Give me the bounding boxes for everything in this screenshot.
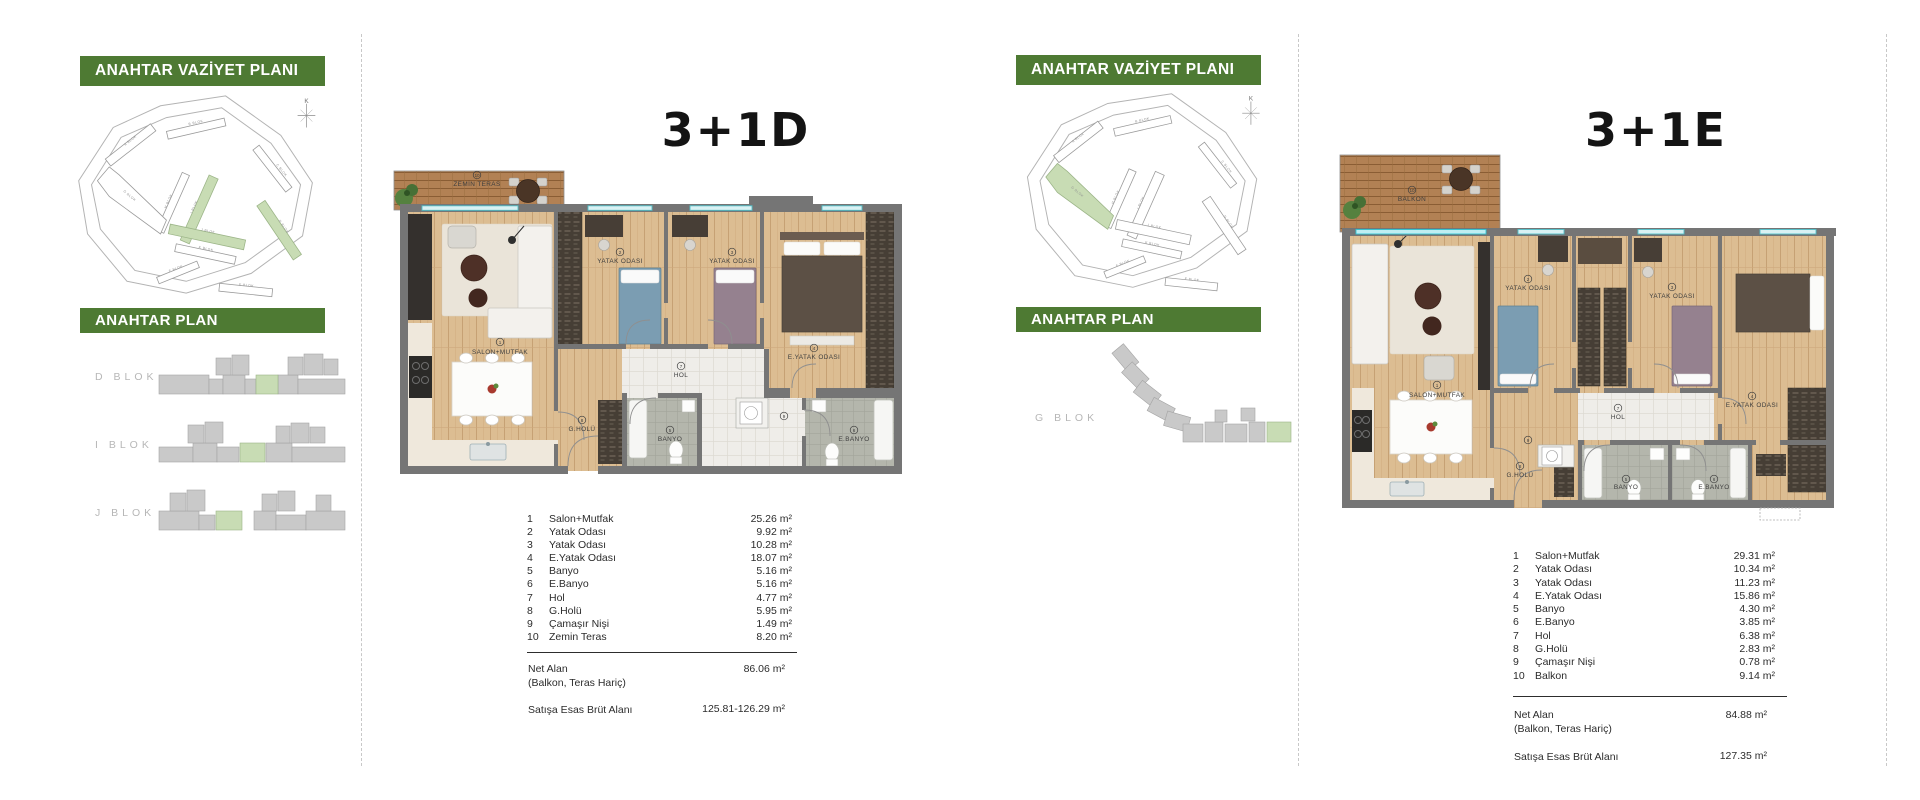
elevation-i-blok — [158, 416, 346, 468]
vaziyet-plan-header-left: ANAHTAR VAZİYET PLANI — [80, 56, 325, 86]
compass-icon: K — [1242, 96, 1259, 125]
room-table-d: 1Salon+Mutfak25.26 m² 2Yatak Odası9.92 m… — [527, 513, 792, 644]
divider-left — [361, 34, 362, 766]
svg-text:5: 5 — [669, 428, 672, 433]
table-row: 5Banyo4.30 m² — [1513, 603, 1775, 616]
anahtar-plan-header-left: ANAHTAR PLAN — [80, 308, 325, 333]
svg-text:BANYO: BANYO — [1614, 484, 1638, 491]
table-row: 9Çamaşır Nişi1.49 m² — [527, 618, 792, 631]
table-row: 9Çamaşır Nişi0.78 m² — [1513, 656, 1775, 669]
svg-text:8: 8 — [1519, 464, 1522, 469]
room-table-e: 1Salon+Mutfak29.31 m² 2Yatak Odası10.34 … — [1513, 550, 1775, 683]
block-label-g: G BLOK — [1035, 412, 1098, 424]
divider-middle — [1298, 34, 1299, 766]
svg-text:6: 6 — [853, 428, 856, 433]
svg-text:E.YATAK ODASI: E.YATAK ODASI — [1726, 402, 1778, 409]
table-row: 1Salon+Mutfak25.26 m² — [527, 513, 792, 526]
svg-text:HOL: HOL — [1611, 414, 1625, 421]
table-row: 4E.Yatak Odası15.86 m² — [1513, 590, 1775, 603]
svg-text:ZEMİN TERAS: ZEMİN TERAS — [453, 179, 500, 188]
balcony — [1340, 155, 1500, 232]
svg-text:8: 8 — [581, 418, 584, 423]
net-area-value-d: 86.06 m² — [527, 663, 785, 675]
svg-text:E.BANYO: E.BANYO — [838, 436, 869, 443]
svg-text:SALON+MUTFAK: SALON+MUTFAK — [1409, 392, 1465, 399]
table-row: 3Yatak Odası11.23 m² — [1513, 577, 1775, 590]
svg-text:10: 10 — [1409, 188, 1415, 193]
svg-text:4: 4 — [1751, 394, 1754, 399]
svg-text:HOL: HOL — [674, 372, 688, 379]
summary-rule-d — [527, 652, 797, 653]
svg-text:2: 2 — [619, 250, 622, 255]
block-label-i: I BLOK — [95, 439, 153, 451]
svg-text:6: 6 — [1713, 477, 1716, 482]
elevation-j-blok — [158, 484, 346, 536]
elevation-g-blok — [1095, 342, 1295, 460]
svg-text:YATAK ODASI: YATAK ODASI — [1505, 285, 1551, 292]
table-row: 8G.Holü2.83 m² — [1513, 643, 1775, 656]
svg-text:3: 3 — [1671, 285, 1674, 290]
svg-text:BALKON: BALKON — [1398, 196, 1426, 203]
table-row: 2Yatak Odası10.34 m² — [1513, 563, 1775, 576]
svg-text:SALON+MUTFAK: SALON+MUTFAK — [472, 349, 528, 356]
svg-text:1: 1 — [499, 340, 502, 345]
elevation-d-blok — [158, 348, 346, 400]
svg-text:E.YATAK ODASI: E.YATAK ODASI — [788, 354, 840, 361]
table-row: 2Yatak Odası9.92 m² — [527, 526, 792, 539]
net-area-value-e: 84.88 m² — [1513, 709, 1767, 721]
site-plan-right: A BLOK B BLOK C BLOK H BLOK I BLOK G BLO… — [1012, 88, 1277, 296]
compass-icon: K — [298, 98, 316, 128]
svg-text:9: 9 — [783, 414, 786, 419]
svg-text:K: K — [304, 98, 309, 105]
table-row: 6E.Banyo5.16 m² — [527, 578, 792, 591]
svg-text:BANYO: BANYO — [658, 436, 682, 443]
table-row: 10Zemin Teras8.20 m² — [527, 631, 792, 644]
svg-text:7: 7 — [680, 364, 683, 369]
svg-text:E.BANYO: E.BANYO — [1698, 484, 1729, 491]
gross-area-value-d: 125.81-126.29 m² — [527, 703, 785, 715]
svg-text:2: 2 — [1527, 277, 1530, 282]
svg-text:7: 7 — [1617, 406, 1620, 411]
table-row: 3Yatak Odası10.28 m² — [527, 539, 792, 552]
divider-right — [1886, 34, 1887, 766]
svg-text:YATAK ODASI: YATAK ODASI — [597, 258, 643, 265]
table-row: 4E.Yatak Odası18.07 m² — [527, 552, 792, 565]
svg-text:5: 5 — [1625, 477, 1628, 482]
gross-area-value-e: 127.35 m² — [1513, 750, 1767, 762]
table-row: 1Salon+Mutfak29.31 m² — [1513, 550, 1775, 563]
vaziyet-plan-header-right: ANAHTAR VAZİYET PLANI — [1016, 55, 1261, 85]
svg-text:G.HOLÜ: G.HOLÜ — [1507, 471, 1534, 479]
lower-step — [1760, 508, 1800, 520]
anahtar-plan-header-right: ANAHTAR PLAN — [1016, 307, 1261, 332]
table-row: 10Balkon9.14 m² — [1513, 670, 1775, 683]
table-row: 6E.Banyo3.85 m² — [1513, 616, 1775, 629]
site-plan-left: A BLOK B BLOK C BLOK H BLOK I BLOK G BLO… — [68, 90, 328, 302]
svg-text:G.HOLÜ: G.HOLÜ — [569, 425, 596, 433]
svg-text:3: 3 — [731, 250, 734, 255]
svg-text:4: 4 — [813, 346, 816, 351]
table-row: 7Hol4.77 m² — [527, 592, 792, 605]
floor-plan-d: 1 SALON+MUTFAK 2 YATAK ODASI 3 YATAK ODA… — [392, 148, 917, 510]
block-label-d: D BLOK — [95, 371, 158, 383]
table-row: 8G.Holü5.95 m² — [527, 605, 792, 618]
svg-text:YATAK ODASI: YATAK ODASI — [709, 258, 755, 265]
summary-rule-e — [1513, 696, 1787, 697]
svg-text:1: 1 — [1436, 383, 1439, 388]
svg-text:K: K — [1249, 96, 1254, 103]
block-label-j: J BLOK — [95, 507, 155, 519]
table-row: 5Banyo5.16 m² — [527, 565, 792, 578]
svg-text:9: 9 — [1527, 438, 1530, 443]
svg-text:YATAK ODASI: YATAK ODASI — [1649, 293, 1695, 300]
table-row: 7Hol6.38 m² — [1513, 630, 1775, 643]
floor-plan-e: 1 SALON+MUTFAK 2 YATAK ODASI 3 YATAK ODA… — [1332, 148, 1852, 523]
svg-text:10: 10 — [474, 173, 480, 178]
